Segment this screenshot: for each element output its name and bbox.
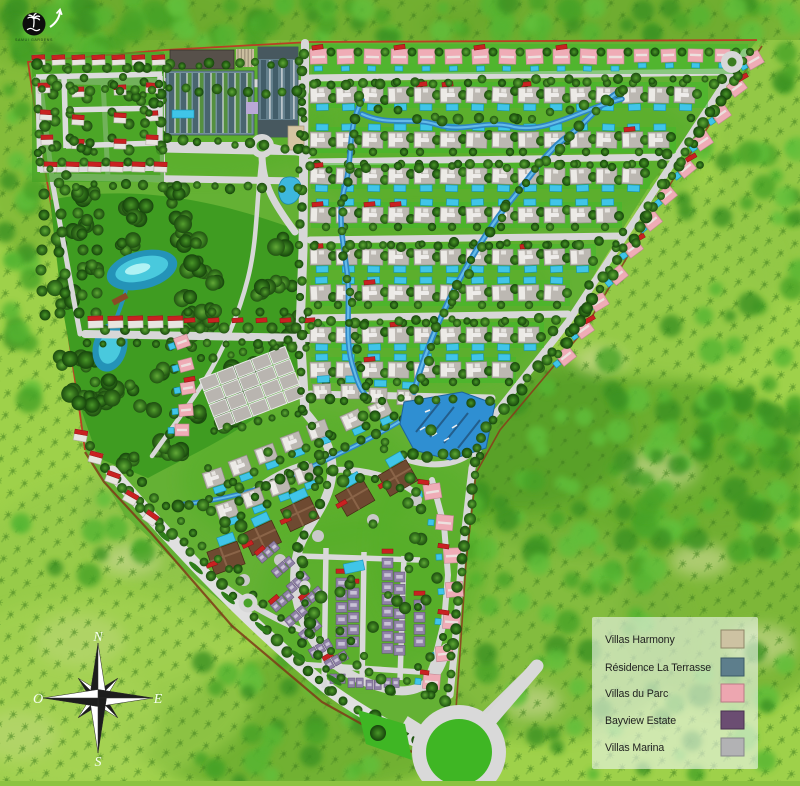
svg-text:Villas du Parc: Villas du Parc (605, 688, 669, 700)
svg-text:E: E (153, 692, 163, 707)
svg-text:Villas Harmony: Villas Harmony (605, 634, 675, 646)
svg-text:SAMUI GARDENS: SAMUI GARDENS (15, 38, 53, 42)
svg-text:S: S (95, 755, 102, 770)
svg-text:Résidence La Terrasse: Résidence La Terrasse (605, 662, 711, 674)
svg-text:N: N (92, 630, 103, 645)
svg-text:O: O (33, 692, 43, 707)
svg-text:Bayview Estate: Bayview Estate (605, 715, 676, 727)
svg-text:Villas Marina: Villas Marina (605, 742, 664, 754)
